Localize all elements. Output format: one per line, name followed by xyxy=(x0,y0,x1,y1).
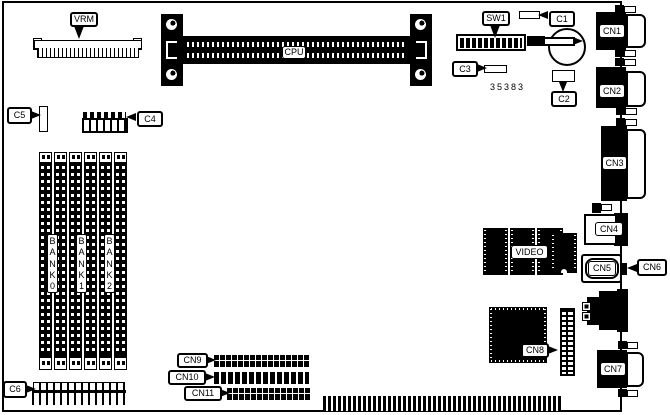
battery xyxy=(548,28,586,66)
video-chip xyxy=(483,228,508,275)
battery-clip-lever xyxy=(543,37,575,46)
battery-clip-tip-icon xyxy=(573,37,583,45)
bracket-tab xyxy=(618,341,627,349)
c2-label: C2 xyxy=(551,91,577,107)
cn5-label: CN5 xyxy=(588,261,616,276)
simm-bottom-cap xyxy=(115,357,126,369)
simm-top-cap xyxy=(55,153,66,163)
simm-bottom-cap xyxy=(85,357,96,369)
simm-top-cap xyxy=(70,153,81,163)
simm-slot xyxy=(114,152,127,370)
cpu-mount-hole-icon xyxy=(410,64,432,86)
cn8-pointer-icon xyxy=(548,346,558,354)
cpu-slot-bracket-left xyxy=(166,41,177,59)
cn7-dsub-shell xyxy=(626,352,644,387)
audio-jack-port xyxy=(582,302,591,311)
cn1-label: CN1 xyxy=(599,24,625,38)
cn9-header xyxy=(214,355,309,367)
bracket-tab xyxy=(615,49,624,57)
cn3-label: CN3 xyxy=(602,156,627,170)
qfp-pin-row xyxy=(491,308,545,310)
c5-capacitor xyxy=(39,106,48,132)
bracket-screw-tab xyxy=(625,119,637,126)
bracket-screw-tab xyxy=(624,50,636,57)
cn6-pointer-icon xyxy=(627,264,637,272)
c4-pointer-icon xyxy=(126,113,136,121)
bracket-tab xyxy=(616,107,625,115)
vrm-slot-pins xyxy=(37,48,139,58)
cn2-label: CN2 xyxy=(599,84,625,98)
bracket-tab xyxy=(592,203,601,213)
cn1-dsub-shell xyxy=(626,14,646,48)
audio-jack xyxy=(599,291,621,330)
cn10-header xyxy=(214,372,309,384)
part-number: 35383 xyxy=(490,82,525,92)
bracket-screw-tab xyxy=(627,390,638,397)
simm-bottom-cap xyxy=(55,357,66,369)
c5-pointer-icon xyxy=(31,111,41,119)
simm-top-cap xyxy=(100,153,111,163)
cpu-mount-hole-icon xyxy=(161,14,183,36)
cpu-mount-hole-icon xyxy=(410,14,432,36)
bank2-label: BANK2 xyxy=(104,234,115,293)
cn9-pointer-icon xyxy=(206,356,216,364)
simm-bottom-cap xyxy=(70,357,81,369)
vrm-pointer-icon xyxy=(74,26,84,39)
c5-label: C5 xyxy=(7,107,32,124)
c4-label: C4 xyxy=(137,111,163,127)
qfp-pin-row xyxy=(491,360,545,362)
video-label: VIDEO xyxy=(511,245,548,259)
cn2-dsub-shell xyxy=(626,71,646,107)
cn11-pointer-icon xyxy=(220,389,230,397)
c1-pointer-icon xyxy=(538,11,548,19)
c3-label: C3 xyxy=(452,61,478,77)
cn11-label: CN11 xyxy=(184,386,222,401)
simm-top-cap xyxy=(115,153,126,163)
cn4-label: CN4 xyxy=(595,222,623,236)
bracket-tab xyxy=(618,389,627,397)
audio-jack-port xyxy=(582,312,591,321)
cn10-label: CN10 xyxy=(168,370,206,385)
cpu-mount-hole-icon xyxy=(161,64,183,86)
ic-chip xyxy=(551,233,577,273)
cn6-label: CN6 xyxy=(637,259,667,276)
c1-label: C1 xyxy=(549,11,575,27)
bracket-screw-tab xyxy=(627,342,638,349)
simm-top-cap xyxy=(40,153,51,163)
c3-pointer-icon xyxy=(477,64,487,72)
c6-label: C6 xyxy=(3,381,27,398)
cn11-header xyxy=(227,388,310,400)
motherboard-diagram: VRM CPU SW1 C1 C2 C3 35383 C4 C5 xyxy=(0,0,670,415)
c4-connector-cells xyxy=(84,120,126,131)
sw1-dip-switch-positions xyxy=(460,38,522,48)
vrm-label: VRM xyxy=(70,12,98,27)
bottom-edge-connector xyxy=(323,396,561,411)
bracket-screw-tab xyxy=(625,108,637,115)
simm-top-cap xyxy=(85,153,96,163)
c1-capacitor xyxy=(519,11,540,19)
cn10-pointer-icon xyxy=(205,373,215,381)
cn8-label: CN8 xyxy=(521,343,549,358)
simm-bottom-cap xyxy=(40,357,51,369)
c2-pointer-icon xyxy=(559,82,567,92)
cpu-slot-bracket-right xyxy=(416,41,427,59)
sw1-label: SW1 xyxy=(482,11,510,26)
bank0-label: BANK0 xyxy=(47,234,58,293)
cn3-dsub-shell xyxy=(626,129,646,199)
c4-connector xyxy=(82,118,128,133)
cn9-label: CN9 xyxy=(177,353,208,368)
c3-capacitor xyxy=(484,65,507,73)
bracket-tab xyxy=(616,118,625,126)
cn8-connector xyxy=(560,308,575,376)
simm-bottom-cap xyxy=(100,357,111,369)
bracket-tab xyxy=(615,58,624,66)
cpu-label: CPU xyxy=(282,46,306,59)
bracket-screw-tab xyxy=(601,204,612,211)
cn7-label: CN7 xyxy=(600,362,626,376)
c6-pointer-icon xyxy=(26,385,36,393)
ic-chip-notch xyxy=(561,269,567,273)
c2-capacitor xyxy=(552,70,575,82)
bank1-label: BANK1 xyxy=(76,234,87,293)
sw1-pointer-icon xyxy=(490,25,500,38)
c6-connector xyxy=(32,390,126,405)
bracket-screw-tab xyxy=(624,59,636,66)
